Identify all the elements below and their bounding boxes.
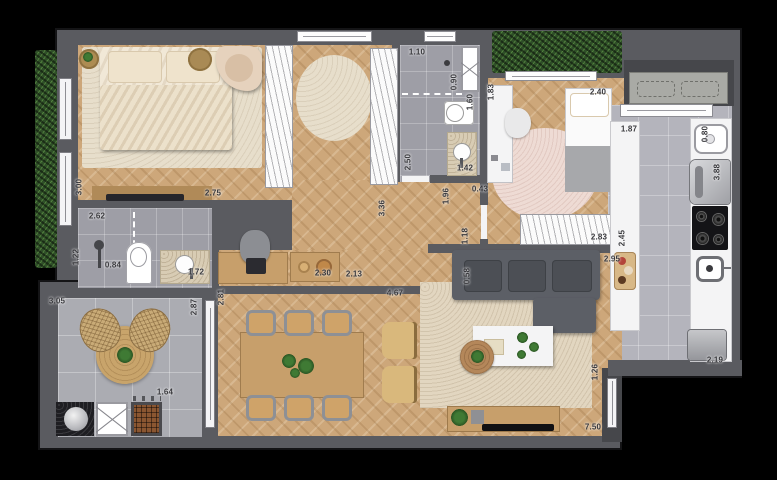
dimension-label: 4.67	[387, 289, 403, 298]
dimension-label: 2.83	[591, 233, 607, 242]
dimension-label: 2.19	[707, 356, 723, 365]
dimension-label: 2.75	[205, 189, 221, 198]
dimension-label: 3.00	[75, 179, 84, 195]
dimension-label: 1.83	[487, 84, 496, 100]
dimension-label: 2.87	[190, 299, 199, 315]
dimension-label: 2.45	[618, 230, 627, 246]
dimension-label: 1.60	[466, 94, 475, 110]
dimension-label: 2.30	[315, 269, 331, 278]
dimension-label: 2.50	[404, 154, 413, 170]
dimension-label: 0.58	[463, 268, 472, 284]
dimension-label: 1.64	[157, 388, 173, 397]
dimension-label: 2.13	[346, 270, 362, 279]
dimension-label: 2.62	[89, 212, 105, 221]
dimension-labels-layer: 3.002.752.621.220.841.721.100.901.601.83…	[0, 0, 777, 480]
dimension-label: 0.80	[701, 126, 710, 142]
dimension-label: 1.96	[442, 188, 451, 204]
dimension-label: 1.26	[591, 364, 600, 380]
dimension-label: 1.10	[409, 48, 425, 57]
dimension-label: 1.72	[188, 268, 204, 277]
dimension-label: 0.43	[472, 185, 488, 194]
dimension-label: 3.05	[49, 297, 65, 306]
dimension-label: 2.95	[604, 255, 620, 264]
dimension-label: 3.88	[713, 164, 722, 180]
floor-plan: 3.002.752.621.220.841.721.100.901.601.83…	[0, 0, 777, 480]
dimension-label: 1.87	[621, 125, 637, 134]
dimension-label: 1.22	[72, 249, 81, 265]
dimension-label: 0.90	[450, 74, 459, 90]
dimension-label: 7.50	[585, 423, 601, 432]
dimension-label: 1.42	[457, 164, 473, 173]
dimension-label: 3.36	[378, 200, 387, 216]
dimension-label: 2.40	[590, 88, 606, 97]
dimension-label: 0.84	[105, 261, 121, 270]
dimension-label: 2.81	[217, 289, 226, 305]
dimension-label: 1.18	[461, 228, 470, 244]
